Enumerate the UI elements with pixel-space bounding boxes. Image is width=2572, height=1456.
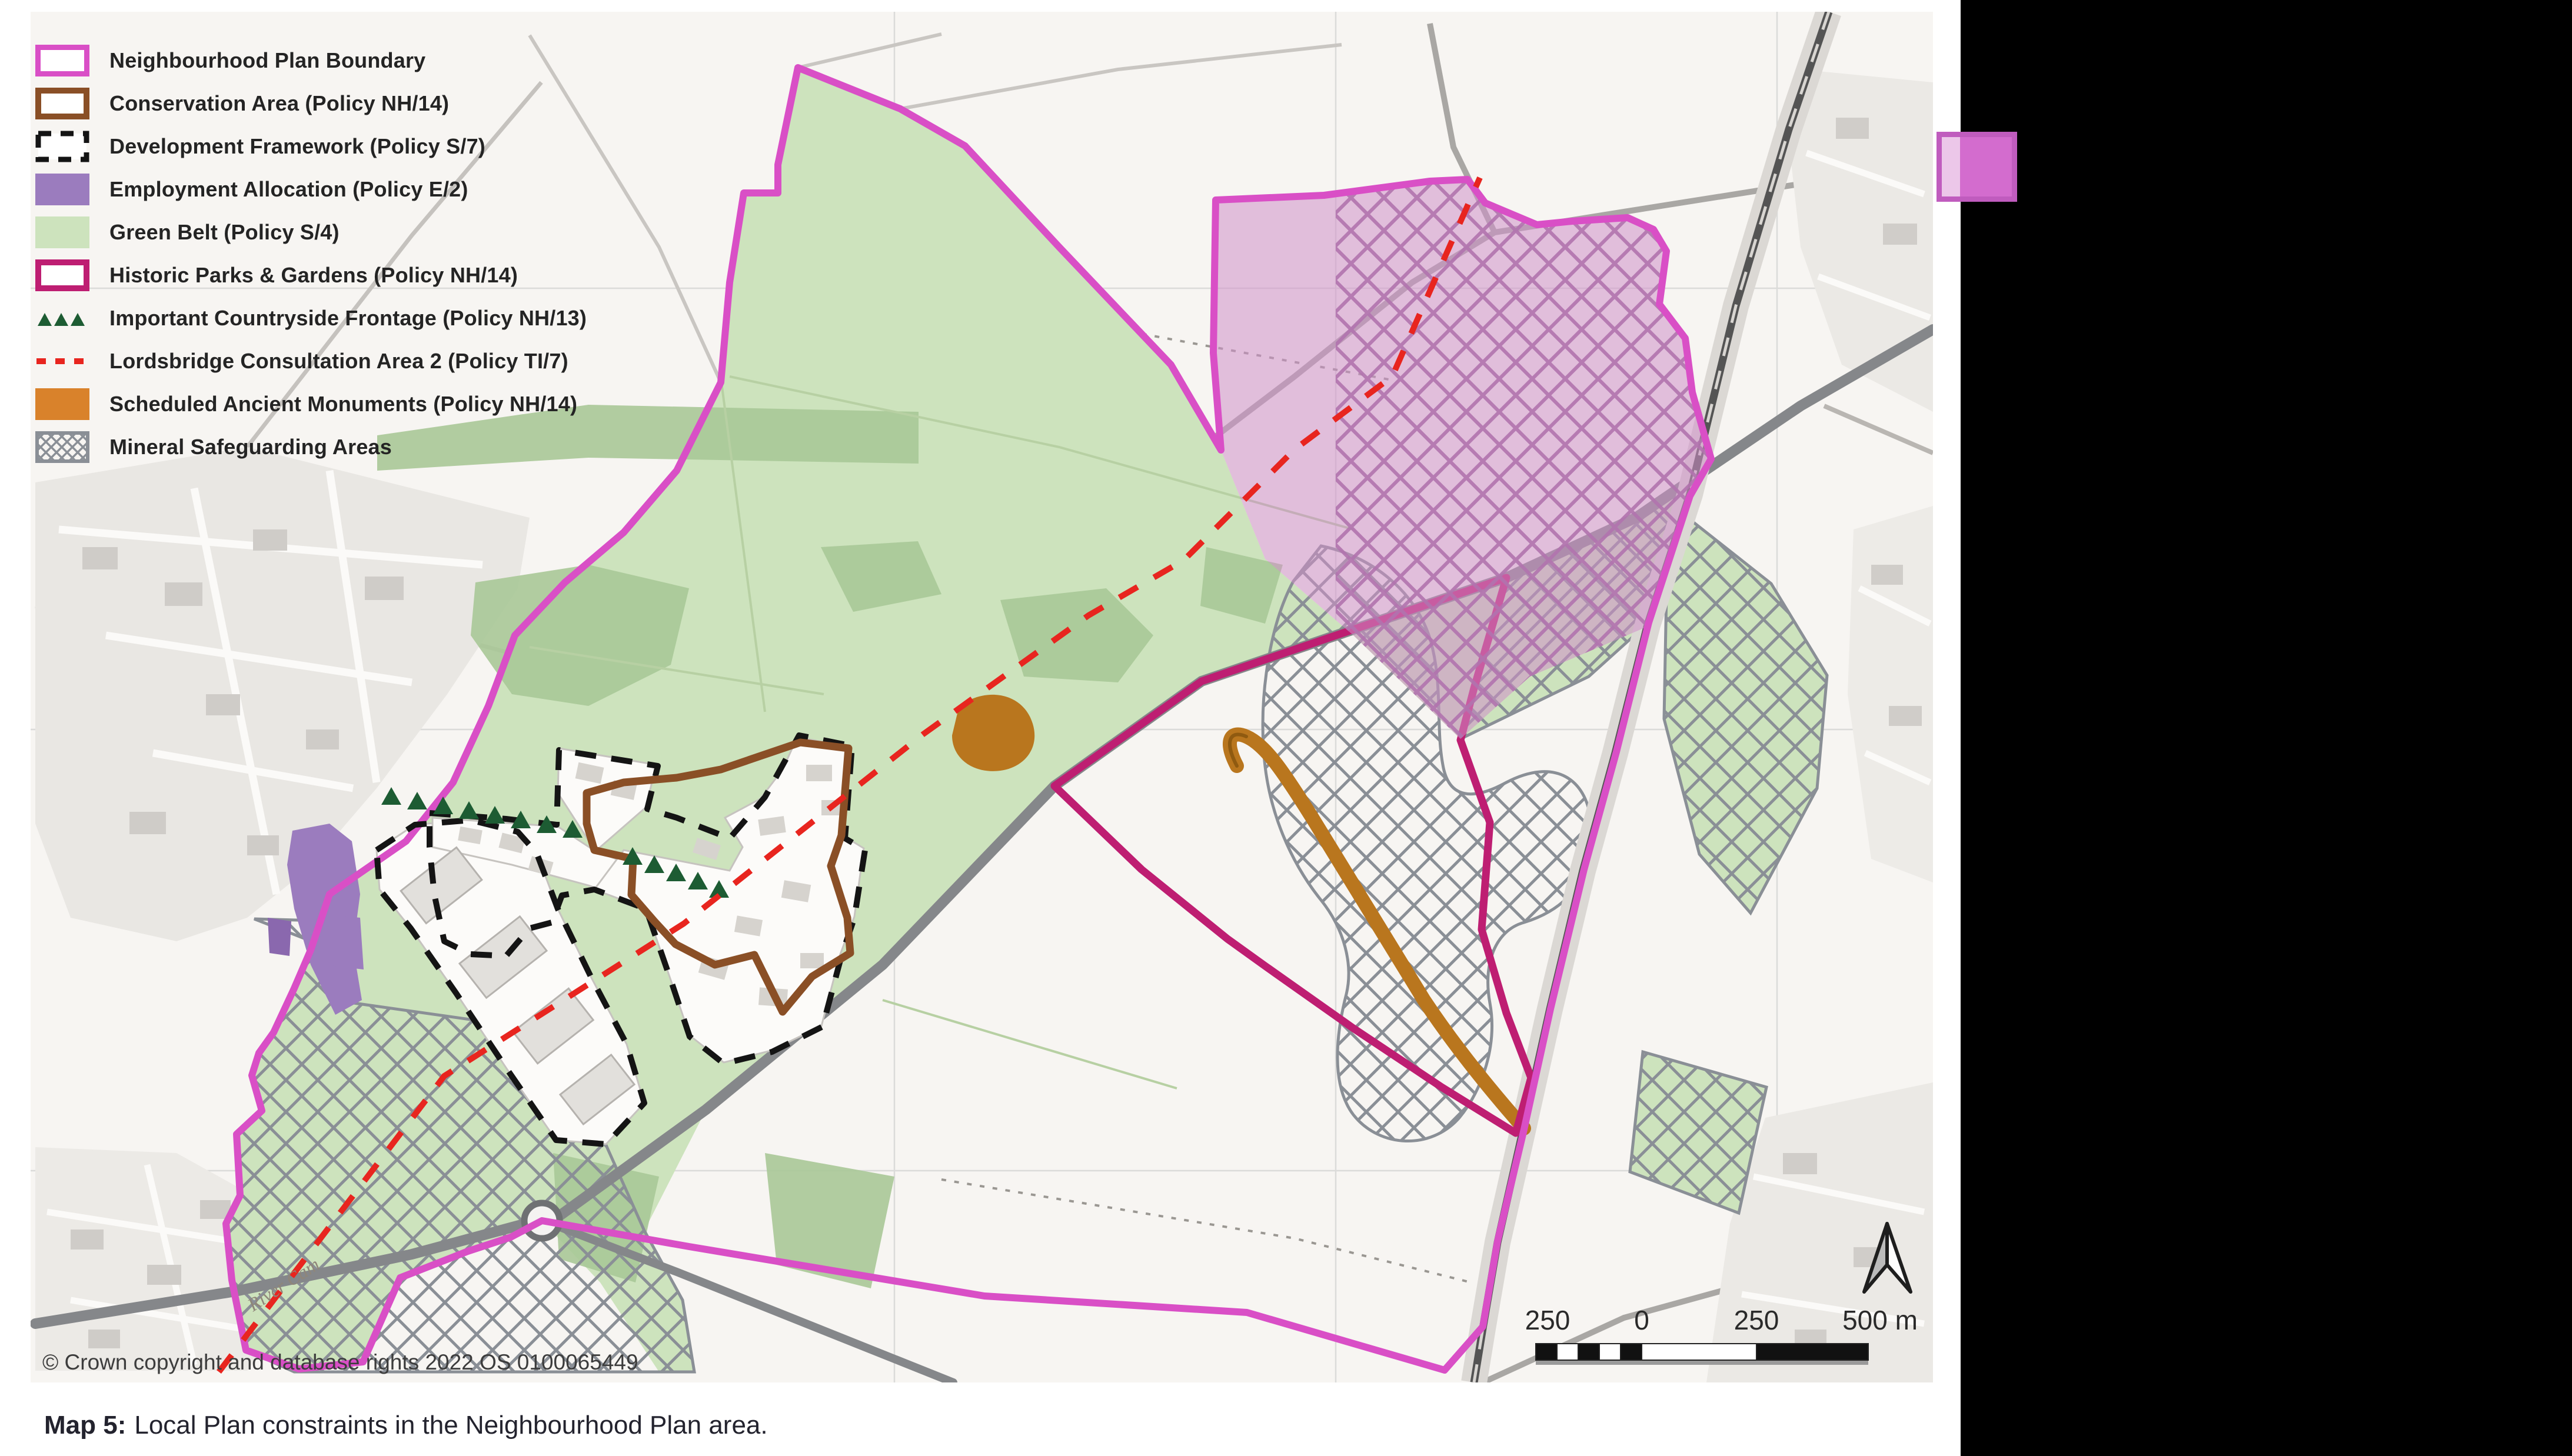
legend-item-mineral-safeguarding: Mineral Safeguarding Areas bbox=[35, 425, 587, 468]
development-framework-swatch-icon bbox=[35, 131, 89, 162]
legend-label: Green Belt (Policy S/4) bbox=[109, 220, 340, 245]
lordsbridge-swatch-icon bbox=[35, 345, 89, 377]
document-page: River Cam © Crown copyright and database… bbox=[0, 0, 2572, 1456]
plan-boundary-swatch-icon bbox=[35, 45, 89, 76]
svg-text:250: 250 bbox=[1525, 1305, 1571, 1335]
copyright-text: © Crown copyright and database rights 20… bbox=[42, 1350, 638, 1374]
caption-label: Map 5: bbox=[44, 1411, 126, 1440]
map-caption: Map 5:Local Plan constraints in the Neig… bbox=[44, 1411, 768, 1440]
legend-item-ancient-monuments: Scheduled Ancient Monuments (Policy NH/1… bbox=[35, 382, 587, 425]
legend-label: Neighbourhood Plan Boundary bbox=[109, 48, 425, 73]
historic-parks-swatch-icon bbox=[35, 259, 89, 291]
legend-item-countryside-frontage: Important Countryside Frontage (Policy N… bbox=[35, 296, 587, 339]
svg-text:250: 250 bbox=[1734, 1305, 1779, 1335]
legend-label: Important Countryside Frontage (Policy N… bbox=[109, 306, 587, 331]
legend-item-employment-allocation: Employment Allocation (Policy E/2) bbox=[35, 168, 587, 211]
legend-label: Conservation Area (Policy NH/14) bbox=[109, 91, 449, 116]
svg-text:500 m: 500 m bbox=[1842, 1305, 1918, 1335]
conservation-area-swatch-icon bbox=[35, 88, 89, 119]
green-belt-swatch-icon bbox=[35, 216, 89, 248]
ancient-monuments-swatch-icon bbox=[35, 388, 89, 420]
legend-label: Employment Allocation (Policy E/2) bbox=[109, 177, 468, 202]
employment-allocation-swatch-icon bbox=[35, 174, 89, 205]
svg-text:0: 0 bbox=[1634, 1305, 1649, 1335]
legend-item-green-belt: Green Belt (Policy S/4) bbox=[35, 211, 587, 254]
legend-item-conservation-area: Conservation Area (Policy NH/14) bbox=[35, 82, 587, 125]
legend-label: Mineral Safeguarding Areas bbox=[109, 435, 392, 459]
countryside-frontage-swatch-icon bbox=[35, 302, 89, 334]
mineral-safeguarding-swatch-icon bbox=[35, 431, 89, 463]
legend-label: Historic Parks & Gardens (Policy NH/14) bbox=[109, 263, 518, 288]
legend-item-development-framework: Development Framework (Policy S/7) bbox=[35, 125, 587, 168]
legend-label: Lordsbridge Consultation Area 2 (Policy … bbox=[109, 349, 568, 374]
legend-item-plan-boundary: Neighbourhood Plan Boundary bbox=[35, 39, 587, 82]
legend-item-lordsbridge: Lordsbridge Consultation Area 2 (Policy … bbox=[35, 339, 587, 382]
legend-label: Development Framework (Policy S/7) bbox=[109, 134, 485, 159]
map-legend: Neighbourhood Plan Boundary Conservation… bbox=[35, 39, 587, 468]
offpage-black-region bbox=[1961, 0, 2572, 1456]
caption-text: Local Plan constraints in the Neighbourh… bbox=[126, 1411, 767, 1440]
legend-label: Scheduled Ancient Monuments (Policy NH/1… bbox=[109, 392, 577, 417]
page-marker-square bbox=[1937, 132, 2017, 202]
legend-item-historic-parks: Historic Parks & Gardens (Policy NH/14) bbox=[35, 254, 587, 296]
